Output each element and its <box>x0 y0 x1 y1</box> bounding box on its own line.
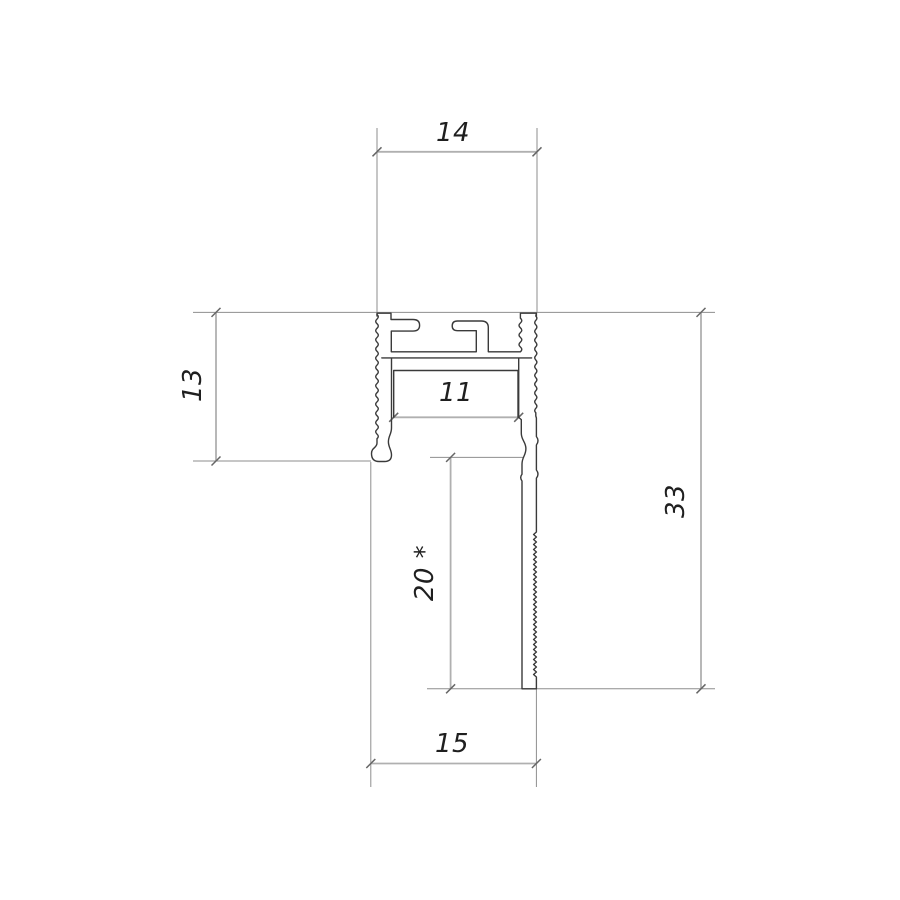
dimension-label-13: 13 <box>178 368 208 402</box>
profile-head <box>377 313 536 352</box>
technical-drawing-canvas: 14 13 11 33 20 * 15 <box>0 0 900 900</box>
extension-lines <box>193 128 715 787</box>
profile-right-wall-leg <box>519 313 538 689</box>
dimension-label-14: 14 <box>436 118 470 148</box>
dimension-labels: 14 13 11 33 20 * 15 <box>178 118 691 759</box>
dimension-label-33: 33 <box>661 484 691 518</box>
profile-left-wall <box>372 315 392 462</box>
dimension-label-15: 15 <box>435 729 469 759</box>
technical-drawing-page: 14 13 11 33 20 * 15 <box>0 0 900 900</box>
dimension-label-11: 11 <box>439 378 473 408</box>
profile-outline <box>372 313 539 689</box>
dimension-label-20: 20 * <box>410 545 440 601</box>
